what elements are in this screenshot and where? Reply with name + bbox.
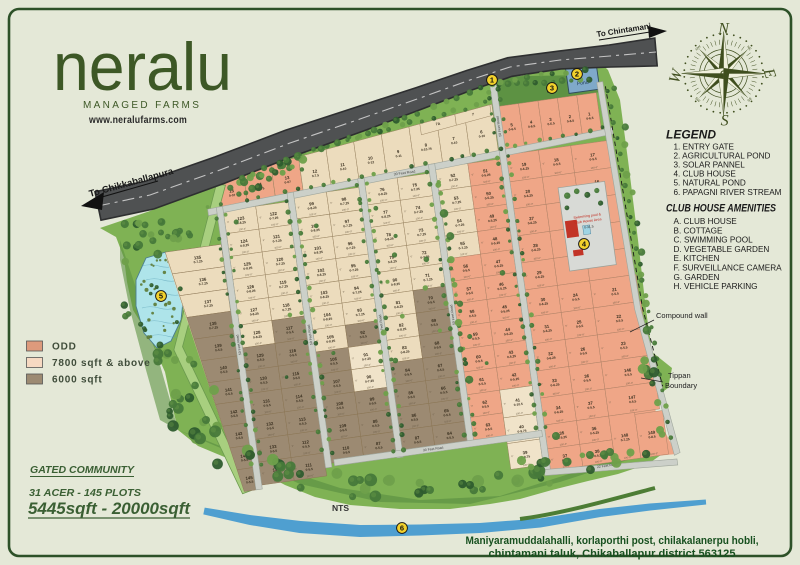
- svg-text:'0": '0": [432, 414, 435, 416]
- svg-text:'0": '0": [336, 247, 339, 249]
- svg-text:'0": '0": [368, 193, 371, 195]
- svg-text:'0": '0": [297, 207, 300, 209]
- svg-text:'0": '0": [404, 211, 407, 213]
- svg-text:'0": '0": [510, 168, 513, 170]
- svg-text:'0": '0": [533, 330, 536, 332]
- svg-text:5445sqft - 20000sqft: 5445sqft - 20000sqft: [28, 500, 192, 518]
- svg-text:'0": '0": [525, 276, 528, 278]
- svg-text:'0": '0": [410, 256, 413, 258]
- svg-text:chintamani taluk, Chikaballapu: chintamani taluk, Chikaballapur district…: [489, 548, 736, 560]
- svg-text:'0": '0": [474, 428, 477, 430]
- svg-text:'0": '0": [417, 301, 420, 303]
- svg-text:'0": '0": [529, 303, 532, 305]
- svg-text:'0": '0": [313, 318, 316, 320]
- svg-text:www.neralufarms.com: www.neralufarms.com: [88, 115, 187, 126]
- svg-text:'0": '0": [227, 222, 230, 224]
- svg-text:B. COTTAGE: B. COTTAGE: [674, 226, 724, 235]
- svg-text:NTS: NTS: [332, 503, 349, 513]
- svg-text:'0": '0": [371, 215, 374, 217]
- svg-text:'0": '0": [307, 274, 310, 276]
- svg-text:Maniyaramuddalahalli, korlapor: Maniyaramuddalahalli, korlaporthi post, …: [466, 535, 759, 547]
- svg-text:'0": '0": [272, 308, 275, 310]
- svg-text:'0": '0": [521, 249, 524, 251]
- svg-text:D. VEGETABLE GARDEN: D. VEGETABLE GARDEN: [674, 245, 770, 254]
- svg-text:'0": '0": [458, 315, 461, 317]
- svg-text:5. NATURAL POND: 5. NATURAL POND: [674, 179, 746, 188]
- svg-text:N: N: [717, 21, 730, 38]
- svg-text:'0": '0": [490, 310, 493, 312]
- svg-text:4. CLUB HOUSE: 4. CLUB HOUSE: [674, 170, 737, 179]
- svg-text:'0": '0": [304, 251, 307, 253]
- svg-text:'0": '0": [282, 377, 285, 379]
- svg-text:'0": '0": [269, 286, 272, 288]
- svg-text:'0": '0": [400, 419, 403, 421]
- svg-text:G. GARDEN: G. GARDEN: [674, 273, 720, 282]
- svg-text:'0": '0": [339, 269, 342, 271]
- svg-text:'0": '0": [401, 188, 404, 190]
- svg-text:'0": '0": [262, 473, 265, 475]
- svg-text:S: S: [721, 113, 729, 130]
- svg-text:'0": '0": [475, 197, 478, 199]
- svg-text:'0": '0": [326, 407, 329, 409]
- svg-text:'0": '0": [279, 354, 282, 356]
- svg-text:ODD: ODD: [52, 342, 77, 353]
- svg-text:'0": '0": [407, 233, 410, 235]
- svg-text:'0": '0": [436, 437, 439, 439]
- svg-text:'0": '0": [249, 382, 252, 384]
- svg-text:'0": '0": [259, 217, 262, 219]
- svg-text:'0": '0": [355, 380, 358, 382]
- svg-text:C. SWIMMING POOL: C. SWIMMING POOL: [674, 236, 754, 245]
- svg-text:'0": '0": [423, 346, 426, 348]
- svg-text:'0": '0": [288, 423, 291, 425]
- svg-text:CLUB HOUSE AMENITIES: CLUB HOUSE AMENITIES: [666, 203, 777, 215]
- svg-text:'0": '0": [461, 337, 464, 339]
- svg-text:6: 6: [400, 524, 404, 533]
- svg-text:'0": '0": [497, 356, 500, 358]
- svg-text:'0": '0": [364, 447, 367, 449]
- svg-text:'0": '0": [500, 378, 503, 380]
- svg-text:Tippan: Tippan: [668, 371, 691, 380]
- svg-text:5: 5: [159, 292, 163, 301]
- svg-text:'0": '0": [322, 385, 325, 387]
- svg-text:'0": '0": [310, 296, 313, 298]
- svg-text:'0": '0": [514, 195, 517, 197]
- svg-text:LEGEND: LEGEND: [666, 127, 716, 141]
- svg-text:Boundary: Boundary: [665, 381, 697, 390]
- svg-text:A. CLUB HOUSE: A. CLUB HOUSE: [674, 217, 738, 226]
- svg-text:'0": '0": [394, 373, 397, 375]
- svg-text:3. SOLAR PANNEL: 3. SOLAR PANNEL: [674, 161, 746, 170]
- svg-text:'0": '0": [481, 242, 484, 244]
- svg-text:2. AGRICULTURAL POND: 2. AGRICULTURAL POND: [674, 151, 771, 160]
- svg-text:'0": '0": [484, 265, 487, 267]
- svg-text:'0": '0": [275, 331, 278, 333]
- svg-text:H. VEHICLE PARKING: H. VEHICLE PARKING: [674, 282, 758, 291]
- svg-text:Compound wall: Compound wall: [656, 311, 708, 320]
- svg-text:F. SURVEILLANCE CAMERA: F. SURVEILLANCE CAMERA: [674, 264, 783, 273]
- svg-text:'0": '0": [471, 174, 474, 176]
- svg-text:'0": '0": [285, 400, 288, 402]
- svg-text:7800 sqft & above: 7800 sqft & above: [52, 358, 151, 369]
- svg-text:'0": '0": [507, 430, 510, 432]
- svg-text:'0": '0": [403, 441, 406, 443]
- svg-text:'0": '0": [262, 240, 265, 242]
- svg-text:'0": '0": [361, 425, 364, 427]
- svg-text:'0": '0": [342, 291, 345, 293]
- svg-text:MANAGED FARMS: MANAGED FARMS: [83, 100, 202, 111]
- svg-text:'0": '0": [420, 324, 423, 326]
- svg-text:'0": '0": [330, 203, 333, 205]
- svg-text:'0": '0": [390, 351, 393, 353]
- svg-text:'0": '0": [478, 220, 481, 222]
- svg-text:'0": '0": [511, 456, 514, 458]
- svg-text:GATED COMMUNITY: GATED COMMUNITY: [30, 464, 135, 476]
- svg-text:'0": '0": [291, 446, 294, 448]
- svg-text:'0": '0": [352, 358, 355, 360]
- svg-text:'0": '0": [494, 333, 497, 335]
- svg-text:neralu: neralu: [53, 29, 232, 105]
- svg-text:2: 2: [575, 70, 579, 79]
- svg-text:'0": '0": [230, 244, 233, 246]
- svg-text:'0": '0": [548, 436, 551, 438]
- svg-text:'0": '0": [397, 396, 400, 398]
- svg-text:6. PAPAGNI RIVER STREAM: 6. PAPAGNI RIVER STREAM: [674, 188, 782, 197]
- svg-text:'0": '0": [551, 459, 554, 461]
- svg-text:6000 sqft: 6000 sqft: [52, 375, 103, 386]
- svg-text:3: 3: [550, 84, 554, 93]
- svg-text:'0": '0": [426, 369, 429, 371]
- svg-text:'0": '0": [346, 314, 349, 316]
- svg-text:'0": '0": [487, 288, 490, 290]
- svg-text:1: 1: [490, 76, 494, 85]
- svg-text:'0": '0": [358, 402, 361, 404]
- svg-text:E. KITCHEN: E. KITCHEN: [674, 254, 720, 263]
- svg-text:'0": '0": [504, 403, 507, 405]
- svg-text:1. ENTRY GATE: 1. ENTRY GATE: [674, 142, 735, 151]
- svg-text:'0": '0": [252, 404, 255, 406]
- svg-text:'0": '0": [471, 405, 474, 407]
- svg-text:'0": '0": [349, 336, 352, 338]
- svg-text:'0": '0": [246, 359, 249, 361]
- svg-text:'0": '0": [333, 225, 336, 227]
- svg-text:31 ACER - 145 PLOTS: 31 ACER - 145 PLOTS: [29, 487, 141, 499]
- svg-text:'0": '0": [236, 290, 239, 292]
- svg-text:'0": '0": [413, 279, 416, 281]
- svg-text:'0": '0": [429, 391, 432, 393]
- svg-text:'0": '0": [266, 263, 269, 265]
